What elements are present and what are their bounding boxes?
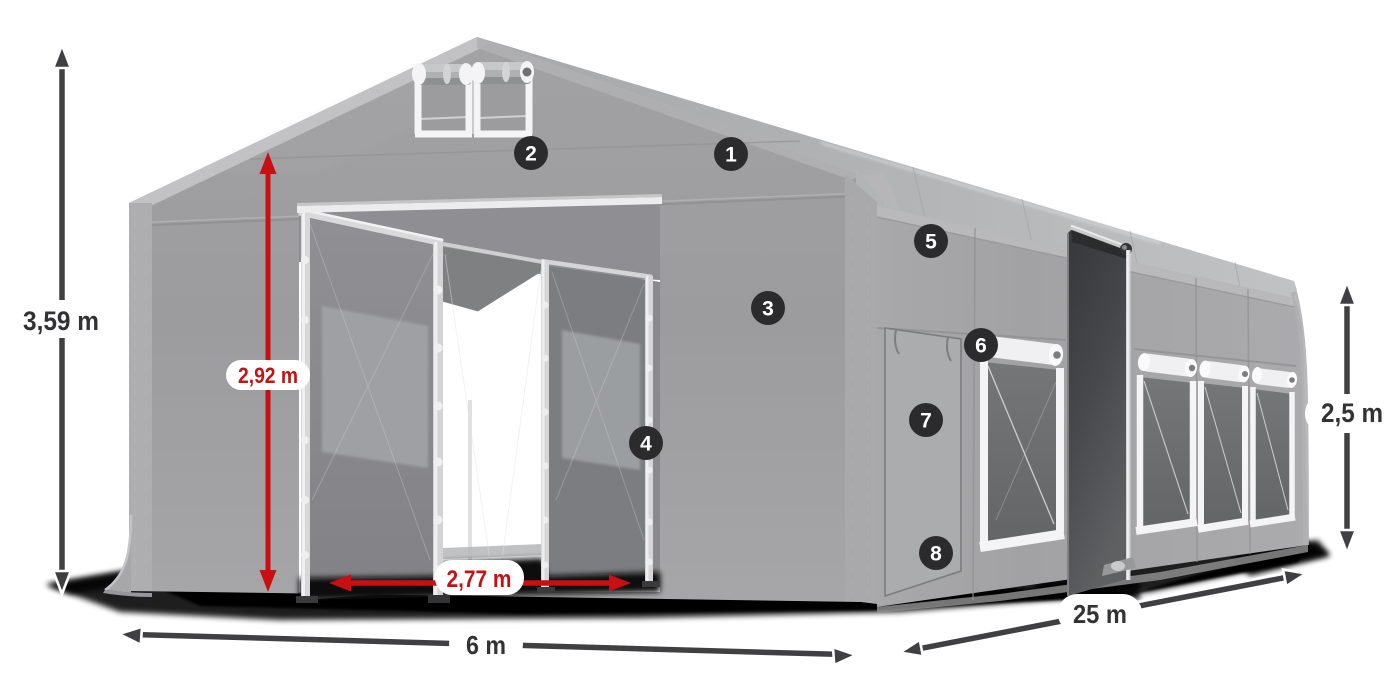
svg-text:25 m: 25 m xyxy=(1073,599,1127,629)
svg-text:6 m: 6 m xyxy=(466,630,506,660)
svg-text:8: 8 xyxy=(930,543,942,566)
svg-text:4: 4 xyxy=(640,433,652,456)
svg-text:1: 1 xyxy=(725,144,737,167)
svg-text:3: 3 xyxy=(762,298,774,321)
svg-text:2,92 m: 2,92 m xyxy=(238,363,298,388)
svg-text:3,59 m: 3,59 m xyxy=(23,306,99,336)
svg-text:5: 5 xyxy=(925,231,937,254)
svg-text:6: 6 xyxy=(975,335,987,358)
svg-text:2: 2 xyxy=(525,143,537,166)
svg-text:7: 7 xyxy=(920,410,932,433)
svg-text:2,5 m: 2,5 m xyxy=(1321,398,1383,428)
svg-text:2,77 m: 2,77 m xyxy=(447,566,512,593)
